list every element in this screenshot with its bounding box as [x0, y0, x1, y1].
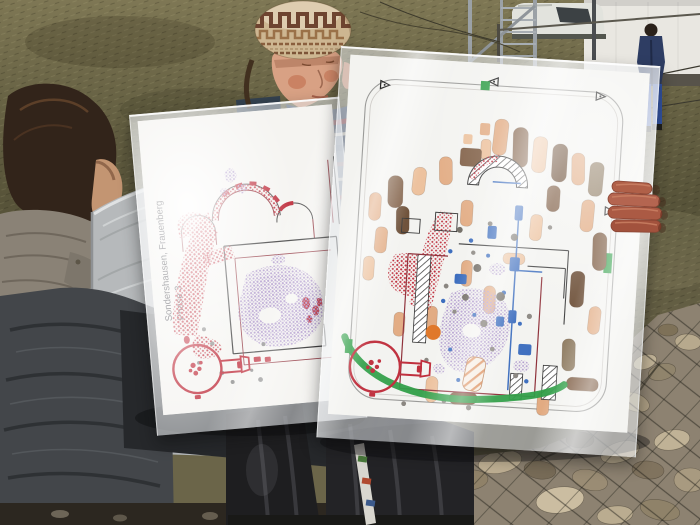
- hand-right-fingers: [598, 180, 676, 248]
- plan-right-graves: [316, 46, 660, 457]
- photo-scene: Sondershausen, Frauenberg Phase 3: [0, 0, 700, 525]
